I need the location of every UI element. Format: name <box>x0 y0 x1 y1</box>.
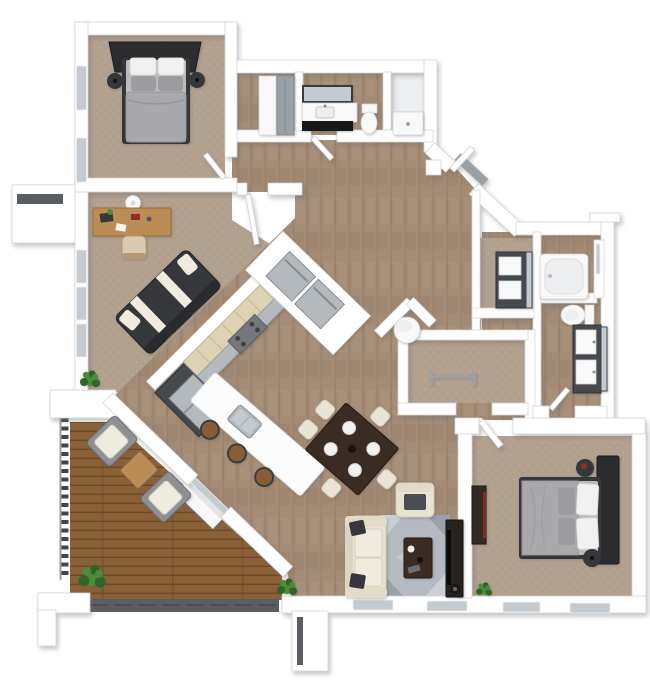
sofa-arm <box>345 587 387 598</box>
bed1-pillow-gray <box>558 518 575 545</box>
desk-book <box>131 214 140 220</box>
wall-bedroom1-top-b <box>513 418 645 434</box>
walkin-closet-floor <box>408 340 525 403</box>
shower-drain <box>406 122 410 126</box>
wall-bedroom1-right <box>632 428 646 606</box>
wall-bath-block-top <box>225 60 435 73</box>
desk-plant <box>107 209 113 215</box>
bed2-pillow-white <box>130 58 156 75</box>
wall-topright-horizontal <box>516 222 612 235</box>
floor-lamp-bulb <box>453 587 457 591</box>
tub-window <box>596 244 600 274</box>
wall-bedroom2-right <box>225 22 237 157</box>
dressing-mirror <box>526 252 532 308</box>
office-window-2 <box>77 287 87 320</box>
wall-bedroom2-top <box>75 22 237 35</box>
armchair-cushion <box>404 494 426 510</box>
bed2-duvet <box>126 92 186 142</box>
bed2-pillow-gray <box>131 76 156 91</box>
bottom-window-4 <box>570 603 610 613</box>
office-window-1 <box>77 250 87 283</box>
wall-closet-south-a <box>398 403 456 415</box>
wall-bedroom1-top-a <box>455 418 479 434</box>
bed2-lamp-left <box>113 79 117 83</box>
mbath-mirror <box>601 327 607 391</box>
vanity-faucet <box>593 371 596 374</box>
desk-chair-back <box>122 253 146 259</box>
bed1-pillow-white <box>576 483 599 515</box>
dressing-vanity-top <box>499 257 521 275</box>
hallbath-faucet <box>324 105 327 108</box>
coffee-table-bowl <box>408 546 415 553</box>
desk-cup <box>147 217 152 222</box>
bottom-window-2 <box>427 601 467 611</box>
bed2-pillow-white <box>158 58 184 75</box>
coffee-table-vase <box>417 557 423 563</box>
hall-closet-furniture <box>259 76 294 135</box>
wall-bedroom2-bottom <box>75 178 237 192</box>
wall-topright-tab <box>590 213 620 222</box>
bed1-lamp <box>590 556 594 560</box>
bed1-pillow-gray <box>558 488 575 515</box>
hallbath-cabinet <box>302 121 353 131</box>
rack-post <box>473 372 476 386</box>
ceiling-fan-hub <box>131 201 136 206</box>
bottom-window-3 <box>503 602 540 612</box>
utility-closet-furniture <box>394 317 420 343</box>
hallway-floor <box>232 140 433 192</box>
wall-hall-south-b <box>268 183 302 195</box>
wall-mbath-south-b <box>575 406 607 418</box>
entry-pillar <box>426 160 441 175</box>
dressing-vanity-top <box>499 281 521 299</box>
wall-closet-west <box>398 340 408 408</box>
dressing-room-furniture <box>496 252 532 308</box>
wall-bath-shower-divider <box>383 72 391 130</box>
bathtub-drain <box>548 274 552 278</box>
wall-hall-south-a <box>237 183 247 195</box>
wall-deck-bottom-tab <box>38 610 56 646</box>
bedroom2-window-1 <box>77 66 87 110</box>
hallbath-toilet-bowl <box>361 112 377 134</box>
water-heater-top <box>396 320 412 332</box>
office-window-3 <box>77 324 87 357</box>
floor-plan-stage <box>0 0 650 687</box>
bed2-lamp-right <box>195 78 199 82</box>
mbath-toilet-tank <box>585 305 594 325</box>
bottom-chimney-slot <box>297 617 303 665</box>
bed1-pillow-white <box>576 517 599 549</box>
wall-mbath-south-a <box>533 406 549 418</box>
mbath-toilet-seat <box>564 309 578 321</box>
wall-left-chimney <box>12 185 75 243</box>
tv-screen <box>447 530 451 585</box>
left-chimney-vent <box>17 194 63 204</box>
hallbath-mirror <box>303 86 352 102</box>
rack-post <box>430 372 433 386</box>
armchair-back <box>396 483 434 492</box>
bottom-window-1 <box>353 600 393 610</box>
bedroom2-window-2 <box>77 138 87 182</box>
floor-plan-svg <box>0 0 650 687</box>
hallbath-sink <box>316 107 334 118</box>
bedroom1-dresser-accent <box>483 492 486 538</box>
sofa-pillow-dark <box>349 573 366 589</box>
bed2-pillow-gray <box>158 76 183 91</box>
wall-dressing-south <box>472 308 534 318</box>
vanity-faucet <box>593 341 596 344</box>
bed1-red-vase <box>581 463 587 469</box>
closet-slider-white[interactable] <box>259 76 276 135</box>
wall-closet-south-b <box>492 403 528 415</box>
